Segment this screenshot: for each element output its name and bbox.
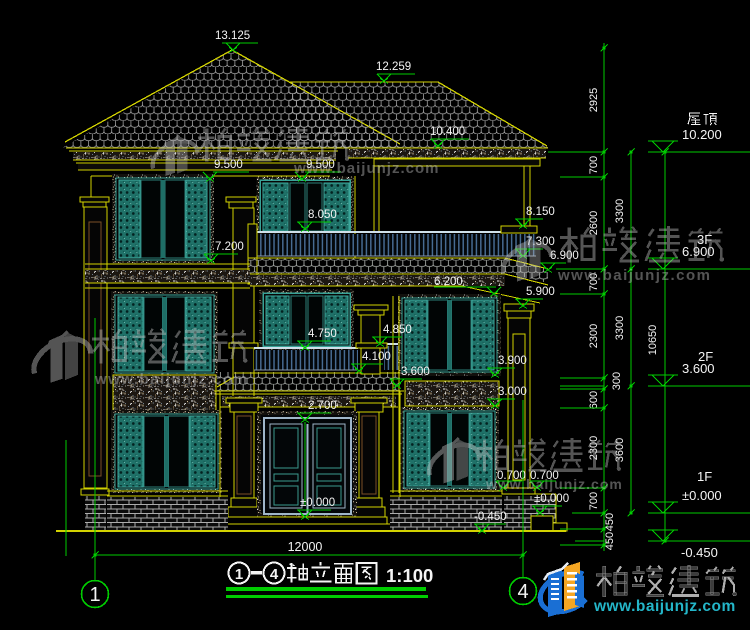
- svg-text:±0.000: ±0.000: [682, 488, 722, 503]
- svg-text:10.400: 10.400: [430, 126, 465, 138]
- svg-text:-0.450: -0.450: [474, 511, 507, 523]
- svg-text:8.150: 8.150: [526, 206, 555, 218]
- svg-text:2925: 2925: [588, 88, 600, 112]
- svg-text:4: 4: [517, 581, 528, 603]
- svg-text:6.900: 6.900: [550, 250, 579, 262]
- svg-text:www.baijunjz.com: www.baijunjz.com: [94, 371, 248, 388]
- svg-text:10.200: 10.200: [682, 127, 722, 142]
- svg-text:1:100: 1:100: [386, 565, 433, 586]
- svg-text:www.baijunjz.com: www.baijunjz.com: [593, 598, 736, 615]
- svg-text:5.900: 5.900: [526, 286, 555, 298]
- svg-text:4.100: 4.100: [362, 351, 391, 363]
- svg-text:1: 1: [235, 566, 243, 583]
- svg-text:2.700: 2.700: [308, 400, 337, 412]
- svg-text:±0.000: ±0.000: [534, 493, 569, 505]
- svg-text:4: 4: [270, 566, 279, 583]
- svg-text:3.600: 3.600: [401, 366, 430, 378]
- svg-text:6.200: 6.200: [434, 276, 463, 288]
- svg-text:1F: 1F: [697, 469, 712, 484]
- svg-text:600: 600: [588, 391, 600, 409]
- svg-text:9.500: 9.500: [214, 159, 243, 171]
- svg-text:13.125: 13.125: [215, 30, 250, 42]
- svg-text:www.baijunjz.com: www.baijunjz.com: [557, 267, 711, 284]
- svg-text:7.200: 7.200: [215, 241, 244, 253]
- svg-text:3.600: 3.600: [682, 361, 715, 376]
- svg-text:12000: 12000: [288, 540, 323, 554]
- svg-text:www.baijunjz.com: www.baijunjz.com: [293, 160, 439, 177]
- svg-text:4.750: 4.750: [308, 328, 337, 340]
- svg-text:300: 300: [611, 372, 623, 390]
- svg-text:700: 700: [588, 492, 600, 510]
- svg-text:±0.000: ±0.000: [300, 497, 335, 509]
- svg-text:3300: 3300: [614, 316, 626, 340]
- svg-text:12.259: 12.259: [376, 61, 411, 73]
- svg-text:-0.450: -0.450: [681, 545, 718, 560]
- svg-text:450: 450: [604, 513, 616, 531]
- svg-text:4.850: 4.850: [383, 324, 412, 336]
- svg-text:1: 1: [89, 584, 100, 606]
- svg-text:700: 700: [588, 156, 600, 174]
- svg-text:10650: 10650: [647, 325, 659, 356]
- svg-text:2600: 2600: [588, 211, 600, 235]
- svg-text:3.900: 3.900: [498, 355, 527, 367]
- svg-text:8.050: 8.050: [308, 209, 337, 221]
- svg-text:www.baijunjz.com: www.baijunjz.com: [485, 476, 623, 492]
- svg-text:2300: 2300: [588, 324, 600, 348]
- svg-text:3.000: 3.000: [498, 386, 527, 398]
- svg-text:450: 450: [604, 532, 616, 550]
- svg-text:3300: 3300: [614, 199, 626, 223]
